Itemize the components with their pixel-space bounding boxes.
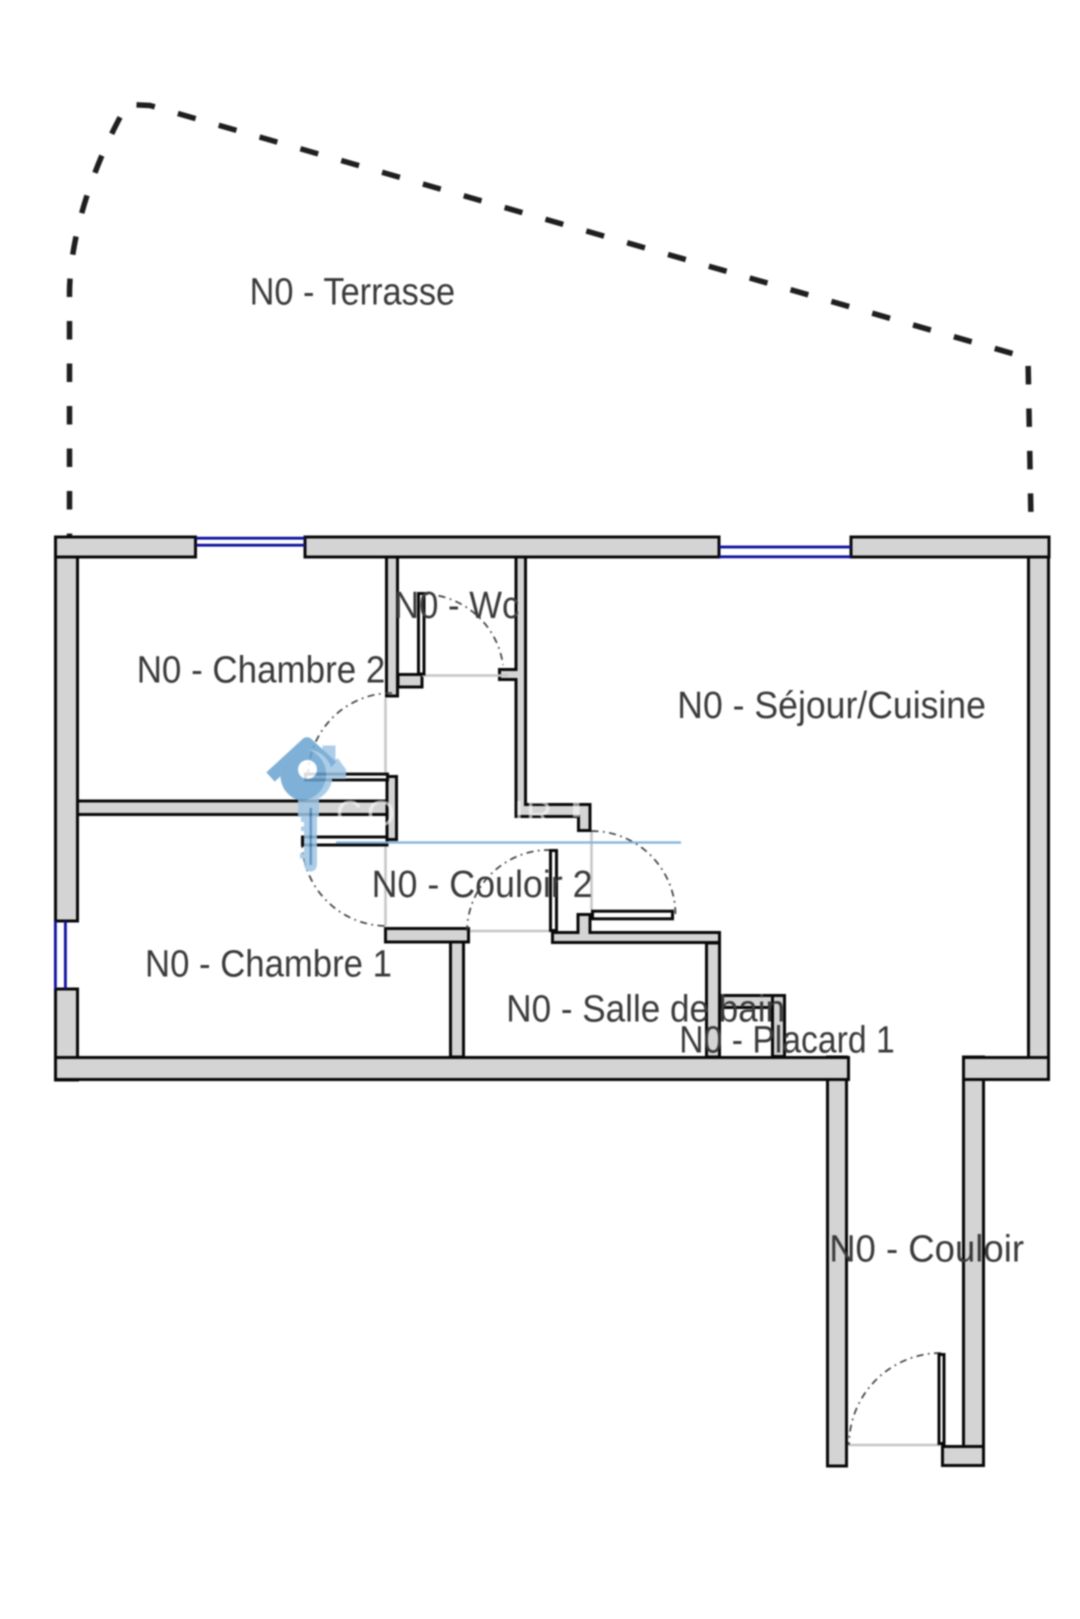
svg-text:N0 - Wc: N0 - Wc: [394, 585, 519, 627]
svg-text:N0 - Chambre 2: N0 - Chambre 2: [137, 650, 386, 692]
svg-text:CO: CO: [336, 793, 400, 834]
svg-text:IR: IR: [514, 793, 554, 834]
svg-text:N0 - Placard 1: N0 - Placard 1: [679, 1020, 894, 1062]
svg-text:N0 - Terrasse: N0 - Terrasse: [250, 271, 456, 313]
svg-text:N0 - Couloir: N0 - Couloir: [829, 1229, 1024, 1271]
svg-text:N0 - Chambre 1: N0 - Chambre 1: [145, 943, 392, 985]
svg-text:N0 - Séjour/Cuisine: N0 - Séjour/Cuisine: [677, 685, 986, 727]
svg-text:N0 - Couloir 2: N0 - Couloir 2: [372, 864, 593, 906]
